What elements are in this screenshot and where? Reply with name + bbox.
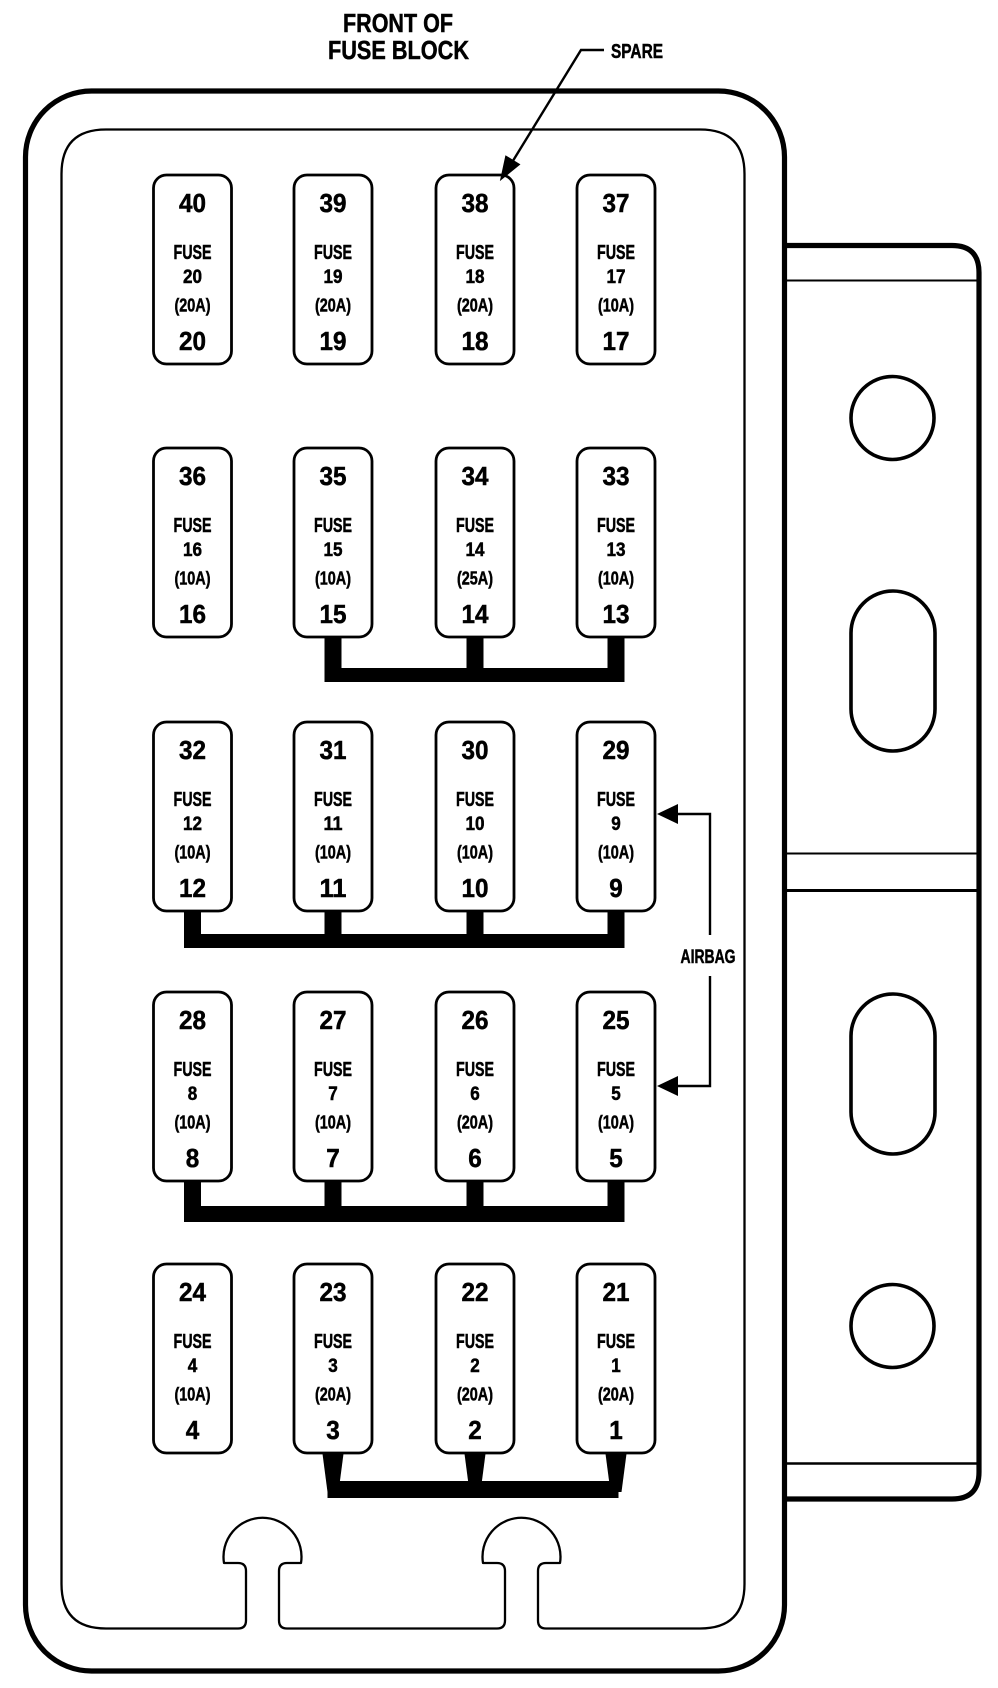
svg-text:21: 21 [603,1277,630,1307]
svg-text:8: 8 [188,1084,198,1105]
svg-text:6: 6 [468,1143,482,1173]
svg-text:4: 4 [186,1415,200,1445]
svg-text:FUSE: FUSE [314,788,352,811]
svg-text:FUSE: FUSE [456,1330,494,1353]
svg-text:(10A): (10A) [175,843,211,863]
svg-text:FUSE: FUSE [597,1330,635,1353]
svg-text:(20A): (20A) [315,1385,351,1405]
svg-text:13: 13 [607,540,626,561]
svg-text:7: 7 [326,1143,340,1173]
svg-text:(10A): (10A) [598,296,634,316]
svg-text:26: 26 [462,1005,489,1035]
svg-text:22: 22 [462,1277,489,1307]
svg-text:14: 14 [462,599,490,629]
svg-text:18: 18 [462,326,489,356]
svg-text:30: 30 [462,735,489,765]
svg-text:(10A): (10A) [598,1113,634,1133]
svg-text:(10A): (10A) [457,843,493,863]
svg-text:1: 1 [611,1356,621,1377]
svg-text:33: 33 [603,461,630,491]
svg-text:FUSE: FUSE [597,241,635,264]
svg-text:FUSE: FUSE [174,788,212,811]
svg-text:FUSE: FUSE [597,514,635,537]
svg-text:16: 16 [179,599,206,629]
svg-text:39: 39 [320,188,347,218]
svg-text:25: 25 [603,1005,630,1035]
svg-text:(20A): (20A) [457,296,493,316]
svg-text:(10A): (10A) [315,1113,351,1133]
svg-text:17: 17 [607,267,626,288]
svg-text:FUSE: FUSE [456,788,494,811]
svg-text:27: 27 [320,1005,347,1035]
svg-text:5: 5 [611,1084,621,1105]
svg-text:1: 1 [609,1415,623,1445]
svg-text:3: 3 [328,1356,338,1377]
svg-text:9: 9 [609,873,623,903]
svg-text:(20A): (20A) [175,296,211,316]
svg-text:10: 10 [466,814,485,835]
svg-text:(10A): (10A) [598,569,634,589]
svg-text:FUSE: FUSE [314,241,352,264]
svg-text:5: 5 [609,1143,623,1173]
svg-text:15: 15 [324,540,343,561]
svg-text:34: 34 [462,461,490,491]
svg-text:29: 29 [603,735,630,765]
svg-text:35: 35 [320,461,347,491]
svg-text:FUSE: FUSE [314,1058,352,1081]
svg-text:20: 20 [179,326,206,356]
svg-text:23: 23 [320,1277,347,1307]
svg-text:19: 19 [324,267,343,288]
svg-text:11: 11 [320,873,347,903]
svg-text:(10A): (10A) [315,569,351,589]
svg-text:37: 37 [603,188,630,218]
svg-text:2: 2 [468,1415,482,1445]
svg-text:(20A): (20A) [457,1113,493,1133]
svg-text:(20A): (20A) [457,1385,493,1405]
svg-text:FUSE: FUSE [174,1058,212,1081]
svg-text:2: 2 [470,1356,480,1377]
svg-text:36: 36 [179,461,206,491]
svg-text:FUSE: FUSE [456,514,494,537]
svg-text:6: 6 [470,1084,480,1105]
svg-text:3: 3 [326,1415,340,1445]
svg-text:(10A): (10A) [175,569,211,589]
svg-text:32: 32 [179,735,206,765]
svg-text:FRONT OF: FRONT OF [343,8,453,38]
svg-text:11: 11 [324,814,343,835]
svg-text:7: 7 [328,1084,338,1105]
svg-text:FUSE: FUSE [597,1058,635,1081]
svg-text:(25A): (25A) [457,569,493,589]
svg-text:FUSE: FUSE [174,1330,212,1353]
svg-text:24: 24 [179,1277,207,1307]
svg-text:10: 10 [462,873,489,903]
svg-text:FUSE: FUSE [456,241,494,264]
svg-text:8: 8 [186,1143,200,1173]
svg-text:(10A): (10A) [598,843,634,863]
svg-text:16: 16 [183,540,202,561]
svg-text:AIRBAG: AIRBAG [681,947,736,968]
svg-text:40: 40 [179,188,206,218]
svg-text:15: 15 [320,599,347,629]
svg-text:FUSE: FUSE [456,1058,494,1081]
svg-text:SPARE: SPARE [611,41,663,63]
svg-text:FUSE: FUSE [597,788,635,811]
svg-text:18: 18 [466,267,485,288]
svg-text:12: 12 [179,873,206,903]
svg-text:4: 4 [188,1356,198,1377]
svg-text:12: 12 [183,814,202,835]
svg-text:14: 14 [466,540,485,561]
svg-text:(10A): (10A) [175,1385,211,1405]
svg-text:(20A): (20A) [315,296,351,316]
svg-text:FUSE: FUSE [314,1330,352,1353]
svg-text:(20A): (20A) [598,1385,634,1405]
svg-text:FUSE: FUSE [314,514,352,537]
svg-text:20: 20 [183,267,202,288]
svg-text:FUSE: FUSE [174,241,212,264]
svg-text:28: 28 [179,1005,206,1035]
svg-text:9: 9 [611,814,621,835]
svg-text:(10A): (10A) [175,1113,211,1133]
svg-text:17: 17 [603,326,630,356]
svg-text:FUSE: FUSE [174,514,212,537]
svg-text:38: 38 [462,188,489,218]
svg-text:(10A): (10A) [315,843,351,863]
svg-text:FUSE BLOCK: FUSE BLOCK [328,35,469,65]
svg-text:13: 13 [603,599,630,629]
svg-text:19: 19 [320,326,347,356]
svg-text:31: 31 [320,735,347,765]
